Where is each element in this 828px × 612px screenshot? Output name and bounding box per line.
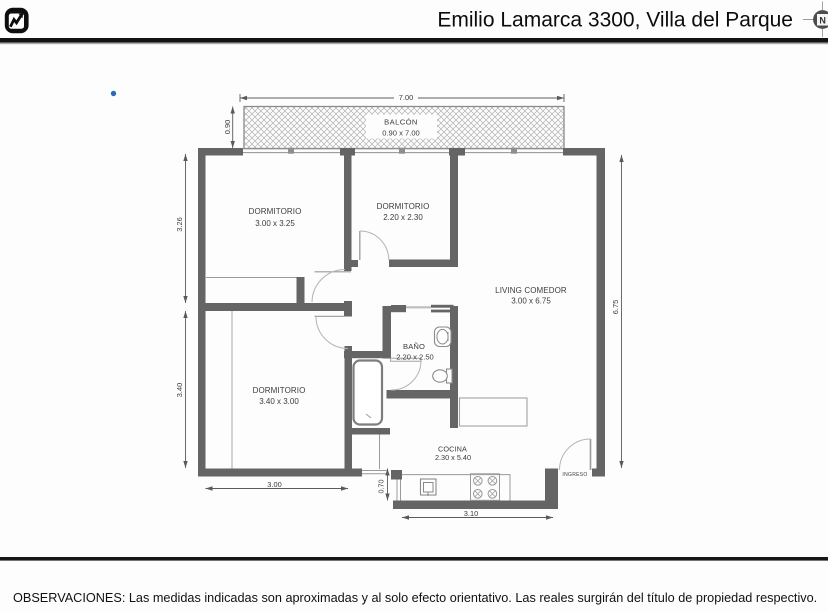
- svg-text:3.00: 3.00: [267, 480, 281, 489]
- svg-text:DORMITORIO: DORMITORIO: [249, 207, 302, 216]
- svg-text:6.75: 6.75: [611, 300, 620, 314]
- svg-text:OBSERVACIONES: Las medidas ind: OBSERVACIONES: Las medidas indicadas son…: [13, 591, 817, 605]
- svg-text:0.90 x 7.00: 0.90 x 7.00: [382, 129, 420, 138]
- svg-text:N: N: [819, 15, 826, 25]
- svg-text:3.00 x 3.25: 3.00 x 3.25: [255, 219, 295, 228]
- svg-text:3.26: 3.26: [175, 217, 184, 231]
- svg-text:0.90: 0.90: [223, 120, 232, 134]
- svg-text:LIVING COMEDOR: LIVING COMEDOR: [495, 286, 567, 295]
- svg-text:2.20 x 2.30: 2.20 x 2.30: [383, 213, 423, 222]
- svg-text:BAÑO: BAÑO: [403, 342, 425, 351]
- svg-text:2.20 x 2.50: 2.20 x 2.50: [396, 353, 434, 362]
- svg-text:3.40 x 3.00: 3.40 x 3.00: [259, 397, 299, 406]
- svg-text:INGRESO: INGRESO: [562, 472, 587, 478]
- svg-text:DORMITORIO: DORMITORIO: [377, 202, 430, 211]
- svg-text:3.00 x 6.75: 3.00 x 6.75: [511, 297, 551, 306]
- svg-text:DORMITORIO: DORMITORIO: [253, 386, 306, 395]
- svg-text:Emilio Lamarca 3300, Villa del: Emilio Lamarca 3300, Villa del Parque: [437, 9, 793, 32]
- svg-text:0.70: 0.70: [377, 480, 386, 494]
- svg-text:3.40: 3.40: [175, 383, 184, 397]
- svg-text:BALCÓN: BALCÓN: [384, 118, 418, 127]
- svg-text:7.00: 7.00: [399, 93, 413, 102]
- svg-text:2.30 x 5.40: 2.30 x 5.40: [435, 453, 471, 462]
- svg-text:3.10: 3.10: [464, 509, 478, 518]
